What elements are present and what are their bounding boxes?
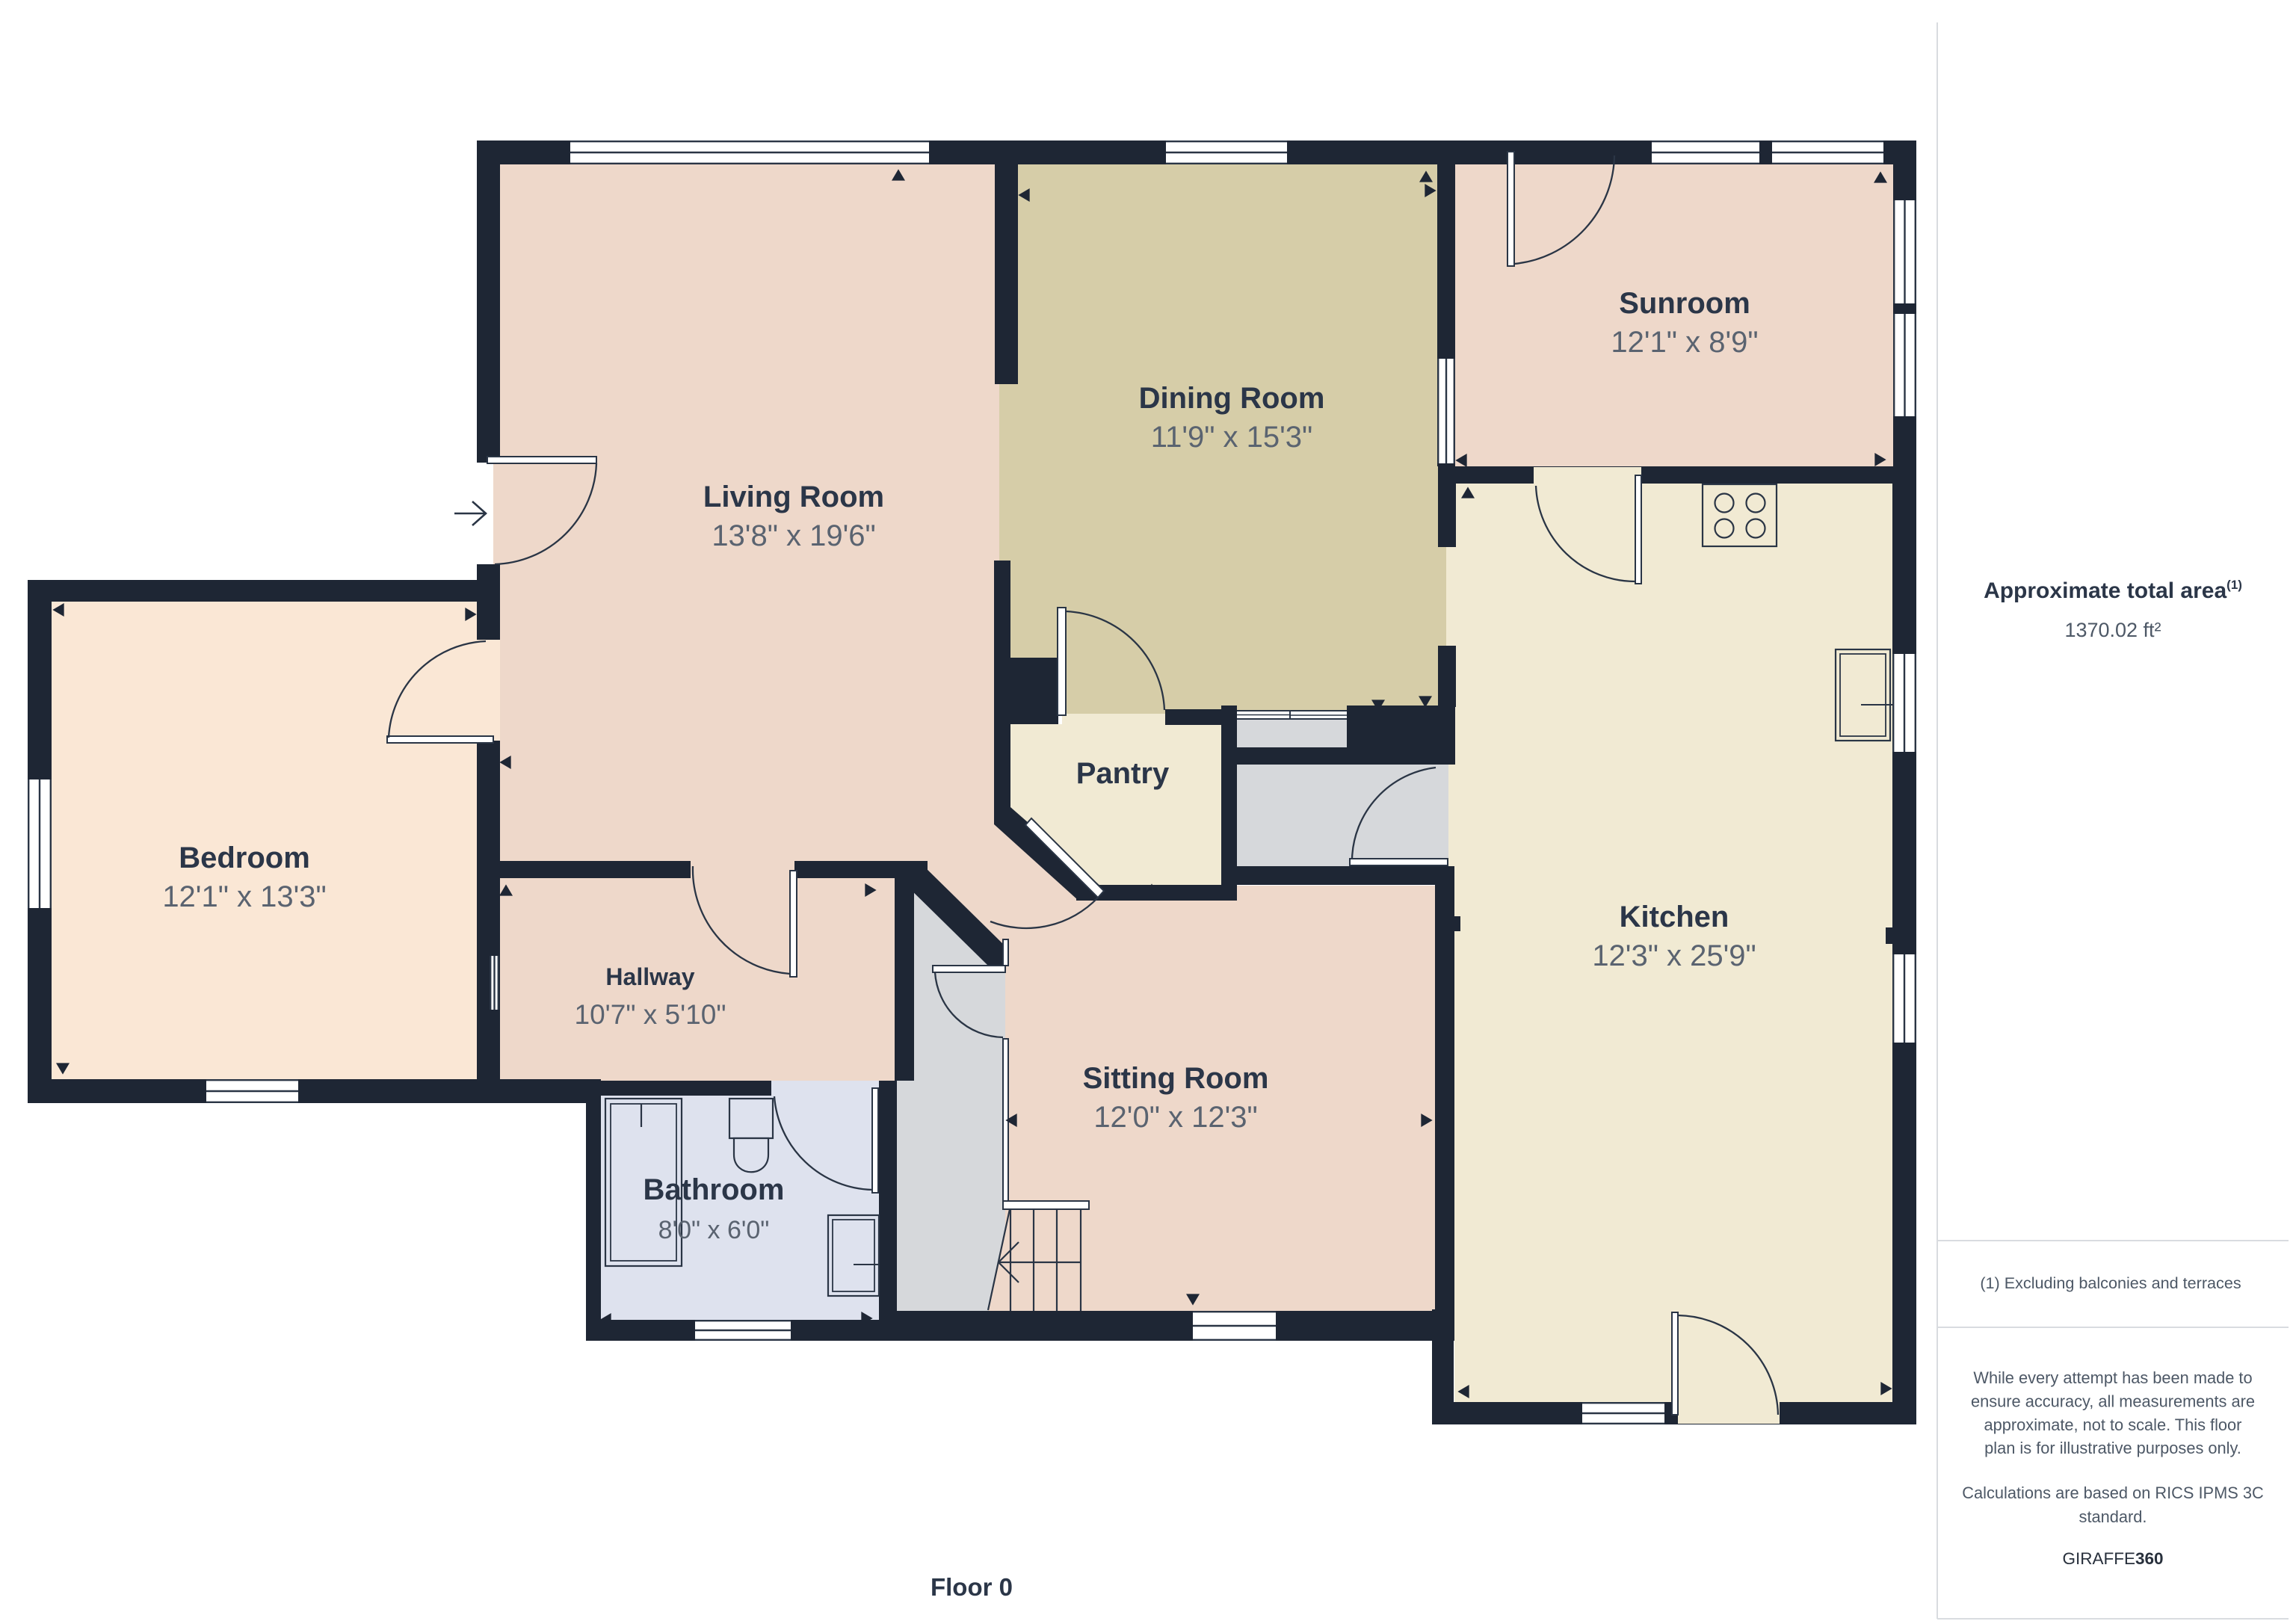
svg-text:approximate, not to scale. Thi: approximate, not to scale. This floor	[1984, 1415, 2242, 1434]
svg-text:GIRAFFE360: GIRAFFE360	[2062, 1549, 2163, 1568]
svg-text:ensure accuracy, all measureme: ensure accuracy, all measurements are	[1971, 1392, 2255, 1410]
svg-text:12'3" x 25'9": 12'3" x 25'9"	[1592, 939, 1756, 972]
svg-text:While every attempt has been m: While every attempt has been made to	[1973, 1368, 2252, 1387]
svg-text:12'0" x 12'3": 12'0" x 12'3"	[1093, 1101, 1257, 1134]
svg-text:Dining Room: Dining Room	[1139, 382, 1325, 415]
svg-text:Sitting Room: Sitting Room	[1083, 1062, 1269, 1095]
svg-text:(1) Excluding balconies and te: (1) Excluding balconies and terraces	[1980, 1273, 2241, 1292]
svg-text:12'1" x 13'3": 12'1" x 13'3"	[162, 880, 326, 913]
svg-text:Bedroom: Bedroom	[179, 842, 310, 874]
svg-text:13'8" x 19'6": 13'8" x 19'6"	[712, 519, 875, 552]
svg-text:plan is for illustrative purpo: plan is for illustrative purposes only.	[1984, 1439, 2241, 1457]
svg-text:Kitchen: Kitchen	[1620, 901, 1729, 933]
svg-text:12'1" x 8'9": 12'1" x 8'9"	[1611, 326, 1758, 359]
svg-text:10'7" x 5'10": 10'7" x 5'10"	[575, 999, 726, 1030]
svg-text:Living Room: Living Room	[703, 481, 884, 513]
svg-text:Approximate total area(1): Approximate total area(1)	[1984, 578, 2242, 603]
svg-text:1370.02 ft²: 1370.02 ft²	[2064, 619, 2161, 641]
svg-text:Hallway: Hallway	[605, 963, 694, 990]
svg-text:Calculations are based on RICS: Calculations are based on RICS IPMS 3C	[1962, 1483, 2263, 1502]
svg-text:standard.: standard.	[2079, 1507, 2147, 1526]
svg-text:8'0" x 6'0": 8'0" x 6'0"	[658, 1216, 770, 1244]
svg-text:Floor 0: Floor 0	[931, 1573, 1013, 1601]
svg-text:11'9" x 15'3": 11'9" x 15'3"	[1151, 421, 1312, 454]
svg-text:Pantry: Pantry	[1076, 757, 1170, 790]
svg-text:Bathroom: Bathroom	[644, 1173, 785, 1206]
svg-text:Sunroom: Sunroom	[1619, 287, 1750, 320]
